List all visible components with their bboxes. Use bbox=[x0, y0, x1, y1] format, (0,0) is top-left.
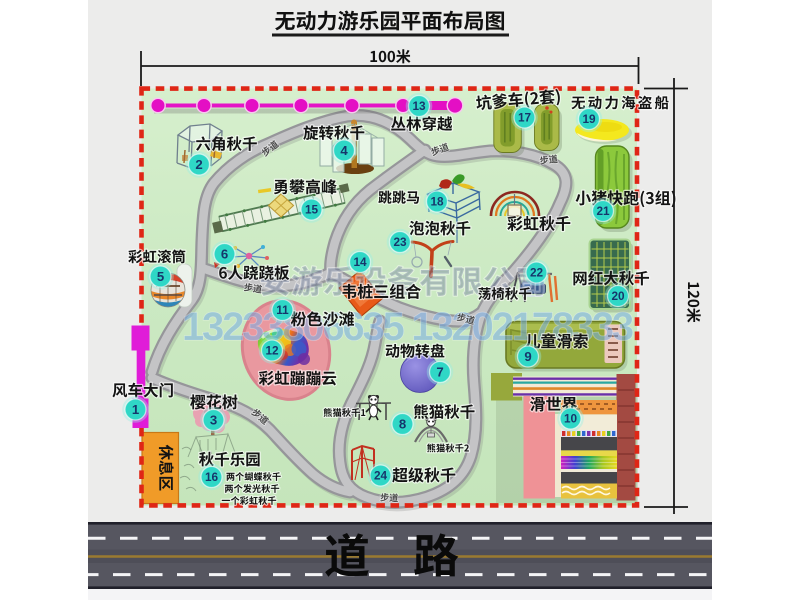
svg-text:22: 22 bbox=[530, 266, 544, 280]
svg-text:18: 18 bbox=[430, 195, 444, 209]
svg-text:17: 17 bbox=[518, 111, 532, 125]
svg-text:3: 3 bbox=[210, 413, 217, 428]
svg-text:15: 15 bbox=[305, 203, 319, 217]
svg-text:7: 7 bbox=[436, 365, 443, 380]
svg-text:20: 20 bbox=[611, 289, 625, 303]
svg-text:10: 10 bbox=[564, 412, 578, 426]
svg-text:13: 13 bbox=[412, 99, 426, 113]
svg-text:14: 14 bbox=[353, 255, 367, 269]
svg-text:5: 5 bbox=[157, 269, 164, 284]
svg-text:23: 23 bbox=[393, 235, 407, 249]
svg-text:16: 16 bbox=[205, 470, 219, 484]
svg-text:1: 1 bbox=[132, 402, 139, 417]
svg-text:4: 4 bbox=[340, 143, 348, 158]
svg-text:8: 8 bbox=[399, 417, 406, 432]
svg-text:2: 2 bbox=[195, 157, 202, 172]
svg-text:6: 6 bbox=[221, 247, 228, 262]
svg-text:19: 19 bbox=[582, 112, 596, 126]
svg-text:9: 9 bbox=[524, 349, 531, 364]
svg-text:24: 24 bbox=[374, 469, 388, 483]
svg-text:21: 21 bbox=[596, 204, 610, 218]
svg-text:11: 11 bbox=[276, 303, 289, 317]
svg-text:12: 12 bbox=[265, 344, 279, 358]
